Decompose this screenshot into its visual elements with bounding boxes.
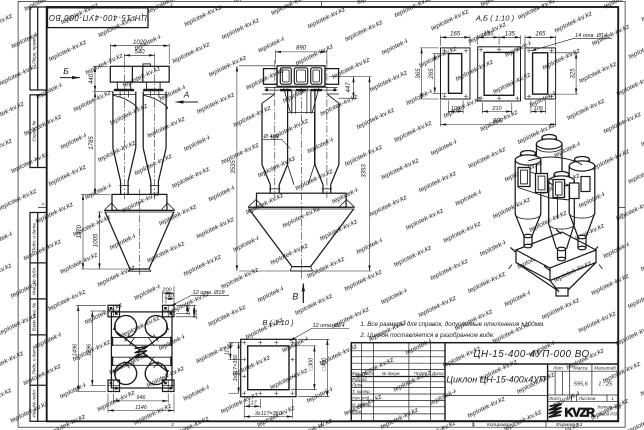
svg-text:12 отв. Ø14: 12 отв. Ø14: [313, 323, 345, 329]
svg-text:135: 135: [505, 30, 516, 37]
svg-text:Перв. примен.: Перв. примен.: [32, 33, 37, 64]
svg-text:1: 1: [473, 422, 476, 428]
svg-text:440: 440: [88, 73, 95, 84]
svg-text:Формат А3: Формат А3: [556, 422, 583, 428]
svg-text:Ø 408: Ø 408: [263, 134, 280, 140]
svg-text:Разраб.: Разраб.: [352, 377, 368, 382]
svg-text:Подп.: Подп.: [414, 371, 425, 376]
svg-text:1146: 1146: [135, 405, 148, 411]
svg-text:Подп. и дата: Подп. и дата: [32, 345, 37, 374]
svg-text:Лист: Лист: [548, 396, 561, 401]
svg-text:3535: 3535: [230, 160, 237, 174]
svg-text:135: 135: [483, 30, 494, 37]
svg-text:Справ. №: Справ. №: [32, 121, 37, 142]
svg-text:ЦН-15-400-4УП-000 ВО: ЦН-15-400-4УП-000 ВО: [473, 349, 589, 360]
svg-text:□400: □400: [322, 357, 328, 370]
svg-text:140: 140: [186, 305, 192, 315]
svg-text:595,6: 595,6: [574, 382, 589, 388]
svg-text:KVZR: KVZR: [565, 406, 596, 420]
svg-text:завод РЗП: завод РЗП: [597, 412, 620, 417]
svg-text:890: 890: [296, 45, 307, 52]
svg-text:Н. контр.: Н. контр.: [352, 402, 371, 407]
svg-text:Лист: Лист: [361, 371, 373, 376]
svg-text:265: 265: [428, 68, 435, 80]
svg-text:В ( 1:10 ): В ( 1:10 ): [262, 318, 294, 327]
svg-text:105: 105: [451, 106, 461, 112]
svg-text:ЦН-15-400-4УП-000 ВО: ЦН-15-400-4УП-000 ВО: [48, 13, 147, 22]
svg-text:1020: 1020: [133, 39, 147, 46]
svg-text:365: 365: [415, 68, 422, 79]
svg-text:Масштаб: Масштаб: [594, 365, 616, 370]
svg-text:Подп. и дата: Подп. и дата: [32, 223, 37, 252]
svg-text:А,Б ( 1:10 ): А,Б ( 1:10 ): [475, 14, 515, 23]
svg-text:Масса: Масса: [574, 365, 588, 370]
svg-text:Инв. № дубл.: Инв. № дубл.: [32, 267, 37, 295]
svg-text:117: 117: [225, 346, 231, 356]
svg-text:1496: 1496: [72, 343, 78, 356]
svg-text:3х117=350: 3х117=350: [255, 411, 283, 417]
svg-text:800: 800: [493, 118, 504, 125]
svg-text:Нач.отд.: Нач.отд.: [352, 395, 370, 400]
svg-text:Циклон ЦН-15-400х4УП: Циклон ЦН-15-400х4УП: [446, 375, 546, 385]
svg-text:946: 946: [136, 395, 146, 401]
svg-text:Лит.: Лит.: [552, 365, 564, 370]
svg-text:Изм.: Изм.: [351, 371, 360, 376]
svg-text:1785: 1785: [88, 136, 95, 150]
svg-text:14 отв. Ø14: 14 отв. Ø14: [575, 33, 607, 39]
svg-text:Котельный: Котельный: [598, 405, 622, 410]
svg-text:□300: □300: [309, 357, 315, 370]
svg-text:105: 105: [534, 106, 544, 112]
svg-text:210: 210: [491, 106, 502, 112]
svg-text:447: 447: [345, 82, 352, 93]
svg-text:Т. контр.: Т. контр.: [352, 389, 371, 394]
svg-text:Листов: Листов: [578, 396, 596, 401]
svg-text:Копировал: Копировал: [487, 422, 511, 428]
svg-text:1: 1: [611, 396, 614, 401]
svg-text:Взам. инв. №: Взам. инв. №: [32, 303, 37, 331]
svg-text:1296: 1296: [87, 343, 93, 356]
svg-text:Пров.: Пров.: [352, 383, 363, 388]
svg-text:1 : 25: 1 : 25: [598, 382, 613, 388]
svg-text:325: 325: [569, 68, 576, 79]
svg-text:2: 2: [171, 422, 174, 428]
svg-text:№ докум.: № докум.: [382, 371, 401, 376]
svg-text:200: 200: [193, 308, 199, 319]
svg-text:3353: 3353: [361, 164, 368, 178]
svg-text:540: 540: [134, 48, 145, 55]
svg-text:Б: Б: [63, 66, 69, 76]
svg-text:2. Циклон поставляется в разо: 2. Циклон поставляется в разобранном вид…: [359, 332, 494, 339]
svg-text:117: 117: [248, 401, 258, 407]
svg-text:1005: 1005: [93, 233, 100, 247]
svg-text:А: А: [183, 90, 190, 100]
svg-text:165: 165: [535, 30, 546, 37]
svg-text:12 отв. Ø18: 12 отв. Ø18: [193, 290, 226, 296]
svg-text:В: В: [292, 292, 298, 302]
svg-text:Дата: Дата: [431, 371, 444, 376]
svg-text:Утв.: Утв.: [352, 409, 362, 414]
svg-text:140: 140: [164, 293, 174, 299]
svg-text:165: 165: [450, 30, 461, 37]
svg-text:Инв. № подл.: Инв. № подл.: [32, 389, 37, 418]
svg-text:1. Все размеры для справок, д: 1. Все размеры для справок, допустимые о…: [360, 321, 545, 328]
svg-text:1370: 1370: [76, 224, 83, 238]
svg-text:3х117=350: 3х117=350: [233, 354, 239, 382]
svg-text:2: 2: [170, 2, 173, 8]
